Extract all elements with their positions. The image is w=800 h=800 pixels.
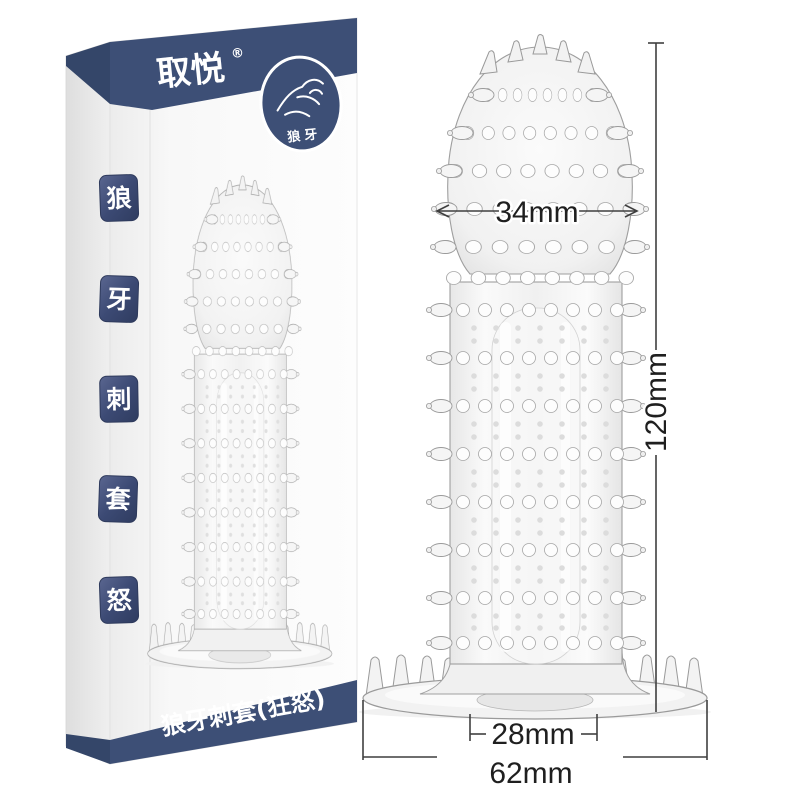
- seal-stamp: 牙: [99, 275, 139, 322]
- svg-text:套: 套: [104, 485, 132, 515]
- dim-label-total-length: 120mm: [640, 352, 673, 452]
- svg-text:牙: 牙: [106, 285, 132, 315]
- seal-stamp: 狼: [99, 174, 139, 221]
- product-photo-canvas: 取悦 ® 狼牙 狼 牙 刺 套: [0, 0, 800, 800]
- svg-text:怒: 怒: [106, 586, 132, 616]
- svg-text:狼: 狼: [106, 184, 132, 214]
- product-box: 取悦 ® 狼牙 狼 牙 刺 套: [66, 18, 357, 764]
- seal-stamp: 刺: [100, 376, 139, 423]
- svg-text:刺: 刺: [106, 385, 132, 414]
- dim-label-opening-width: 28mm: [491, 718, 574, 751]
- product-listing-image: 取悦 ® 狼牙 狼 牙 刺 套: [0, 0, 800, 800]
- brand-name: 取悦: [155, 48, 227, 95]
- dim-label-base-width: 62mm: [489, 757, 572, 790]
- registered-trademark-symbol: ®: [230, 46, 244, 62]
- seal-stamp: 怒: [99, 576, 139, 623]
- dim-label-head-width: 34mm: [495, 196, 578, 229]
- seal-stamp: 套: [98, 475, 138, 522]
